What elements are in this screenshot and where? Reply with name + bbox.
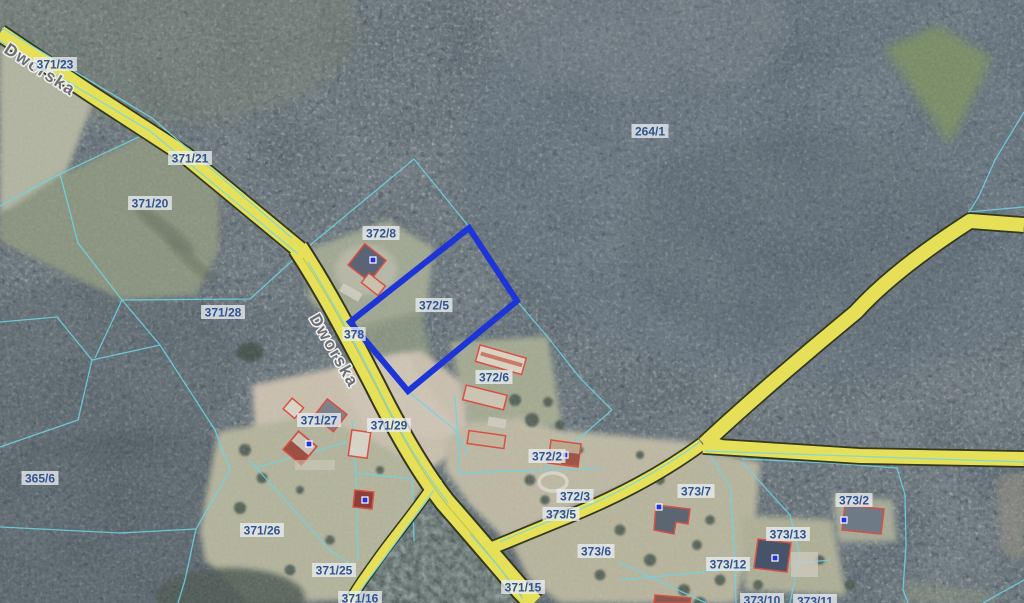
svg-text:371/28: 371/28 [205,306,242,320]
svg-text:371/16: 371/16 [342,592,379,603]
svg-text:373/7: 373/7 [681,485,711,499]
svg-text:371/21: 371/21 [172,152,209,166]
svg-text:371/25: 371/25 [316,564,353,578]
svg-text:373/11: 373/11 [797,595,833,603]
svg-text:372/3: 372/3 [560,490,590,504]
svg-text:372/5: 372/5 [419,299,449,313]
svg-text:372/2: 372/2 [532,450,562,464]
svg-text:373/6: 373/6 [581,545,611,559]
svg-text:373/5: 373/5 [546,508,576,522]
svg-text:373/2: 373/2 [839,494,869,508]
svg-text:373/10: 373/10 [744,594,781,603]
svg-text:373/13: 373/13 [770,528,807,542]
svg-text:371/29: 371/29 [371,419,408,433]
svg-text:371/27: 371/27 [301,414,338,428]
svg-text:372/6: 372/6 [479,371,509,385]
svg-text:365/6: 365/6 [25,472,55,486]
svg-text:373/12: 373/12 [710,558,747,572]
svg-text:371/20: 371/20 [132,197,169,211]
svg-text:371/23: 371/23 [37,58,74,72]
svg-text:264/1: 264/1 [635,125,665,139]
svg-text:371/15: 371/15 [505,581,542,595]
svg-text:372/8: 372/8 [366,227,396,241]
svg-text:378: 378 [344,328,364,342]
svg-text:371/26: 371/26 [244,524,281,538]
